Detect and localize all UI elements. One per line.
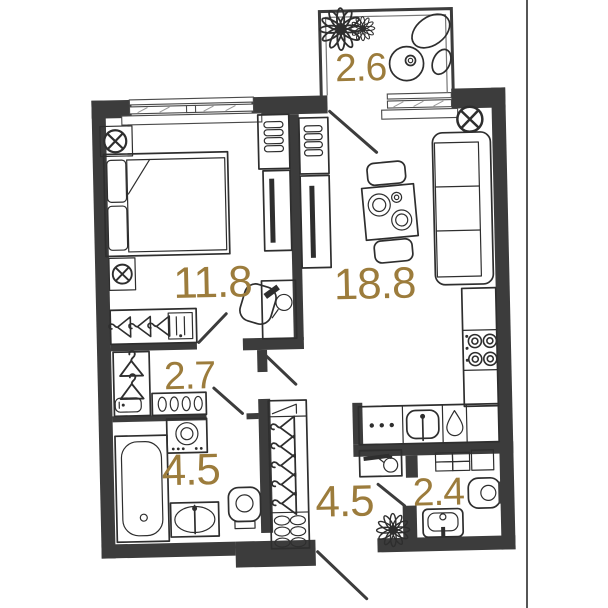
hanger-icon — [271, 416, 295, 439]
hanger-icon — [272, 492, 296, 515]
entrance-door — [318, 551, 367, 600]
hanger-icon — [271, 454, 295, 477]
water-drop-icon — [446, 410, 463, 435]
appliance-icon — [115, 398, 141, 413]
kitchen-counter-icon — [356, 288, 499, 445]
floor-plan-canvas: 2.6 — [0, 0, 608, 608]
hanger-icon — [120, 374, 144, 399]
living-tv-wall — [299, 117, 331, 268]
tv-unit-icon — [263, 170, 292, 251]
hallway-door — [263, 352, 296, 385]
stove-icon — [465, 334, 497, 366]
sofa-icon — [432, 132, 493, 285]
ceiling-light-icon — [457, 106, 483, 132]
room-living-kitchen: 18.8 — [330, 106, 500, 445]
area-label-wardrobe: 2.7 — [164, 354, 216, 398]
toilet-icon — [228, 487, 261, 529]
dresser-icon — [299, 117, 329, 174]
room-bedroom: 11.8 — [100, 114, 297, 344]
area-label-living: 18.8 — [333, 258, 416, 309]
bedroom-door — [198, 314, 227, 343]
area-label-bathroom: 4.5 — [161, 445, 220, 495]
room-balcony: 2.6 — [319, 5, 457, 95]
dining-table-icon — [359, 160, 420, 264]
floor-lamp-icon — [109, 258, 136, 291]
bed-icon — [104, 152, 230, 257]
hanger-icon — [120, 351, 144, 376]
balcony-door — [330, 110, 377, 153]
dresser-icon — [258, 114, 290, 169]
wc-door — [378, 484, 404, 507]
kitchen-sink-icon — [406, 410, 439, 441]
hall-closet-icon — [268, 400, 309, 549]
wardrobe-cabinet-icon — [109, 308, 197, 344]
hanger-icon — [272, 473, 296, 496]
floor-plan: 2.6 — [0, 0, 608, 608]
area-label-balcony: 2.6 — [335, 46, 387, 90]
plan-tilt-group: 2.6 — [89, 4, 516, 604]
toilet-icon — [468, 478, 504, 509]
area-label-wc: 2.4 — [412, 470, 464, 514]
room-wardrobe: 2.7 — [113, 349, 216, 416]
balcony-window — [381, 92, 458, 119]
bathroom-sink-icon — [170, 502, 219, 537]
area-label-bedroom: 11.8 — [173, 257, 252, 308]
area-label-hallway: 4.5 — [315, 476, 374, 526]
dishwasher-icon — [370, 423, 394, 428]
flower-icon — [350, 16, 375, 41]
balcony-chair-icon — [405, 7, 457, 78]
balcony-table-icon — [389, 46, 424, 81]
hanger-icon — [271, 435, 295, 458]
bathroom-door — [214, 387, 243, 414]
bedroom-window — [121, 97, 262, 125]
tv-unit-icon — [300, 175, 331, 268]
